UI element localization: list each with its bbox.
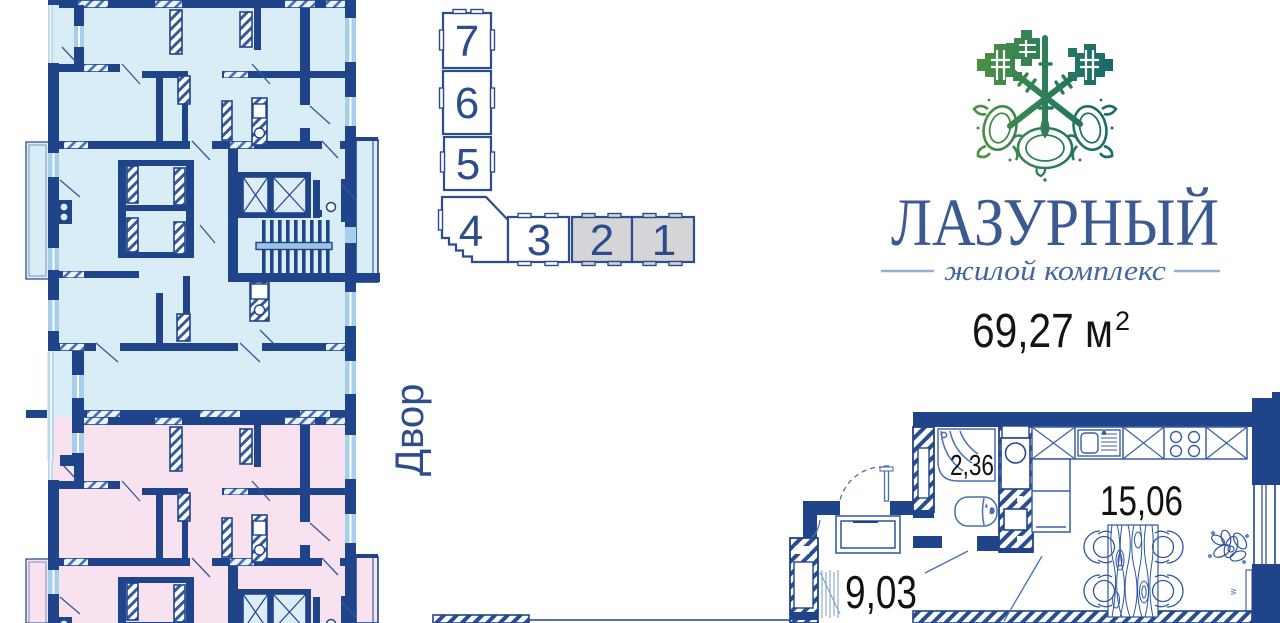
- svg-text:5: 5: [456, 140, 480, 189]
- svg-text:ЛАЗУРНЫЙ: ЛАЗУРНЫЙ: [891, 184, 1219, 260]
- svg-text:9,03: 9,03: [845, 566, 917, 618]
- svg-text:3: 3: [527, 216, 551, 265]
- svg-text:2,36: 2,36: [950, 450, 994, 482]
- svg-text:2: 2: [590, 216, 614, 265]
- svg-text:4: 4: [459, 207, 483, 256]
- svg-text:1: 1: [652, 216, 676, 265]
- svg-text:15,06: 15,06: [1100, 477, 1183, 524]
- svg-text:69,27 м: 69,27 м: [972, 305, 1113, 358]
- svg-text:2: 2: [1115, 306, 1130, 336]
- svg-text:6: 6: [455, 79, 479, 128]
- svg-text:жилой комплекс: жилой комплекс: [944, 255, 1166, 287]
- svg-text:Двор: Двор: [388, 384, 432, 476]
- svg-text:w: w: [1228, 588, 1238, 596]
- svg-text:7: 7: [455, 17, 479, 66]
